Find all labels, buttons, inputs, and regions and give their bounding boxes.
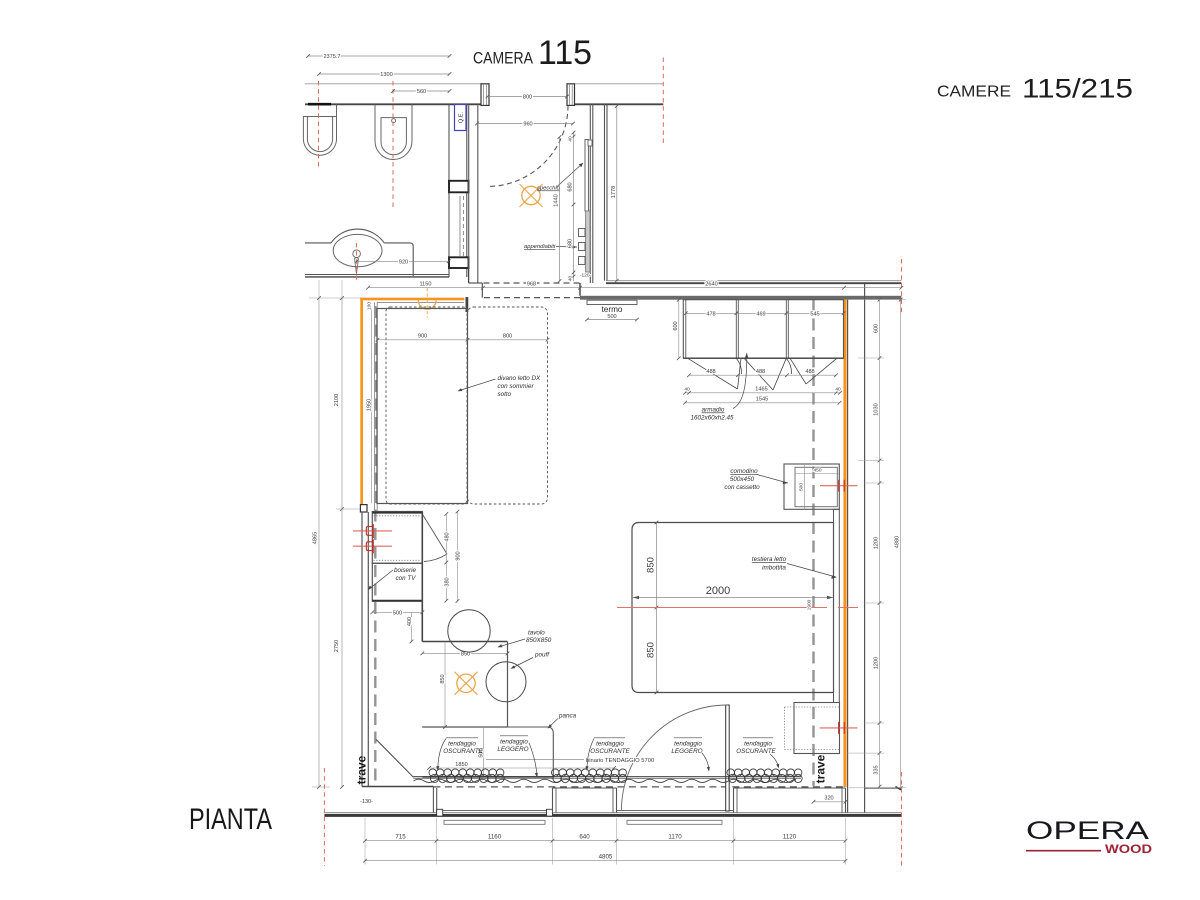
svg-text:OSCURANTE: OSCURANTE — [590, 748, 630, 755]
svg-text:divano letto DX: divano letto DX — [498, 375, 542, 382]
svg-text:680: 680 — [568, 239, 574, 248]
svg-text:400: 400 — [407, 617, 413, 626]
svg-text:1850: 1850 — [455, 762, 467, 768]
svg-text:1440: 1440 — [554, 194, 560, 206]
svg-text:380: 380 — [445, 577, 451, 586]
svg-text:OPERA: OPERA — [1026, 817, 1149, 845]
svg-text:2640: 2640 — [705, 282, 717, 288]
svg-text:450: 450 — [813, 468, 821, 474]
svg-text:appendiabiti: appendiabiti — [524, 244, 556, 250]
svg-text:115/215: 115/215 — [1022, 74, 1133, 104]
svg-text:640: 640 — [579, 834, 590, 841]
svg-text:con cassetto: con cassetto — [724, 484, 760, 491]
svg-text:tendaggio: tendaggio — [500, 738, 528, 745]
svg-text:tendaggio: tendaggio — [744, 740, 772, 747]
svg-text:1545: 1545 — [756, 397, 768, 403]
svg-text:WOOD: WOOD — [1105, 842, 1152, 856]
svg-text:tendaggio: tendaggio — [596, 740, 624, 747]
svg-text:1150: 1150 — [419, 282, 431, 288]
svg-text:500x450: 500x450 — [730, 476, 755, 483]
svg-text:sotto: sotto — [498, 391, 512, 398]
svg-text:488: 488 — [706, 369, 715, 375]
svg-text:imbottita: imbottita — [762, 565, 786, 572]
svg-text:488: 488 — [805, 369, 814, 375]
svg-text:1160: 1160 — [488, 834, 502, 841]
svg-text:tendaggio: tendaggio — [674, 740, 702, 747]
svg-text:pouff: pouff — [534, 652, 550, 659]
svg-text:900: 900 — [456, 551, 462, 560]
svg-text:850: 850 — [440, 674, 446, 683]
svg-text:480: 480 — [445, 532, 451, 541]
svg-text:500: 500 — [607, 314, 616, 320]
svg-text:478: 478 — [706, 311, 715, 317]
svg-text:600: 600 — [874, 324, 880, 333]
svg-text:2750: 2750 — [334, 640, 340, 652]
svg-text:CAMERE: CAMERE — [937, 84, 1011, 101]
svg-text:1950: 1950 — [367, 399, 373, 411]
svg-text:4880: 4880 — [895, 536, 901, 548]
svg-text:trave: trave — [355, 755, 369, 784]
svg-text:-120-: -120- — [580, 273, 592, 279]
svg-text:1200: 1200 — [874, 537, 880, 549]
svg-text:115: 115 — [538, 34, 592, 72]
svg-text:termo: termo — [602, 305, 623, 314]
svg-text:560: 560 — [417, 89, 426, 95]
svg-text:920: 920 — [399, 259, 408, 265]
svg-text:40: 40 — [684, 387, 690, 393]
svg-text:469: 469 — [756, 311, 765, 317]
svg-text:2375.7: 2375.7 — [323, 54, 340, 60]
svg-text:1200: 1200 — [874, 657, 880, 669]
svg-text:2100: 2100 — [334, 394, 340, 406]
svg-text:con sommier: con sommier — [498, 383, 535, 390]
svg-text:PIANTA: PIANTA — [189, 803, 272, 836]
svg-text:600: 600 — [673, 321, 679, 330]
svg-text:335: 335 — [874, 765, 880, 774]
svg-text:1778: 1778 — [611, 186, 617, 198]
svg-text:850X850: 850X850 — [526, 637, 552, 644]
svg-text:OSCURANTE: OSCURANTE — [736, 748, 776, 755]
svg-text:960: 960 — [523, 122, 532, 128]
svg-text:320: 320 — [824, 796, 833, 802]
svg-text:715: 715 — [395, 834, 406, 841]
svg-text:LEGGERO: LEGGERO — [671, 748, 702, 755]
svg-text:500: 500 — [393, 610, 402, 616]
svg-text:40: 40 — [835, 387, 841, 393]
svg-text:trave: trave — [814, 754, 828, 783]
svg-text:OSCURANTE: OSCURANTE — [443, 748, 483, 755]
svg-text:con TV: con TV — [396, 575, 417, 582]
svg-text:boiserie: boiserie — [394, 567, 417, 574]
svg-text:545: 545 — [810, 311, 819, 317]
svg-text:LEGGERO: LEGGERO — [497, 746, 528, 753]
svg-text:binario TENDAGGIO 5700: binario TENDAGGIO 5700 — [586, 758, 654, 764]
svg-text:testiera letto: testiera letto — [752, 556, 787, 563]
svg-text:850: 850 — [646, 557, 657, 573]
svg-text:comodino: comodino — [730, 468, 758, 475]
svg-text:1465: 1465 — [755, 387, 767, 393]
svg-text:40: 40 — [568, 276, 574, 282]
svg-text:968: 968 — [527, 282, 536, 288]
svg-text:tendaggio: tendaggio — [448, 740, 476, 747]
svg-text:1170: 1170 — [668, 834, 682, 841]
svg-text:panca: panca — [558, 713, 577, 720]
svg-text:500: 500 — [799, 483, 805, 491]
svg-text:1300: 1300 — [380, 72, 392, 78]
svg-text:armadio: armadio — [702, 407, 725, 414]
svg-text:800: 800 — [523, 95, 532, 101]
svg-text:Q.E.: Q.E. — [459, 111, 465, 123]
svg-text:4805: 4805 — [599, 854, 613, 861]
svg-text:1900: 1900 — [807, 599, 813, 610]
svg-text:-130-: -130- — [360, 799, 373, 805]
svg-text:900: 900 — [418, 334, 427, 340]
svg-text:4865: 4865 — [313, 532, 319, 544]
svg-text:680: 680 — [568, 182, 574, 191]
svg-text:tavolo: tavolo — [528, 630, 545, 637]
svg-text:850: 850 — [646, 642, 657, 658]
svg-text:1030: 1030 — [874, 403, 880, 415]
svg-text:2000: 2000 — [706, 585, 730, 597]
svg-text:1602x60xh2.45: 1602x60xh2.45 — [690, 415, 734, 422]
svg-text:100: 100 — [367, 302, 373, 310]
svg-text:800: 800 — [503, 334, 512, 340]
svg-text:CAMERA: CAMERA — [473, 50, 533, 68]
svg-text:40: 40 — [568, 136, 574, 142]
svg-text:1120: 1120 — [783, 834, 797, 841]
svg-text:488: 488 — [756, 369, 765, 375]
